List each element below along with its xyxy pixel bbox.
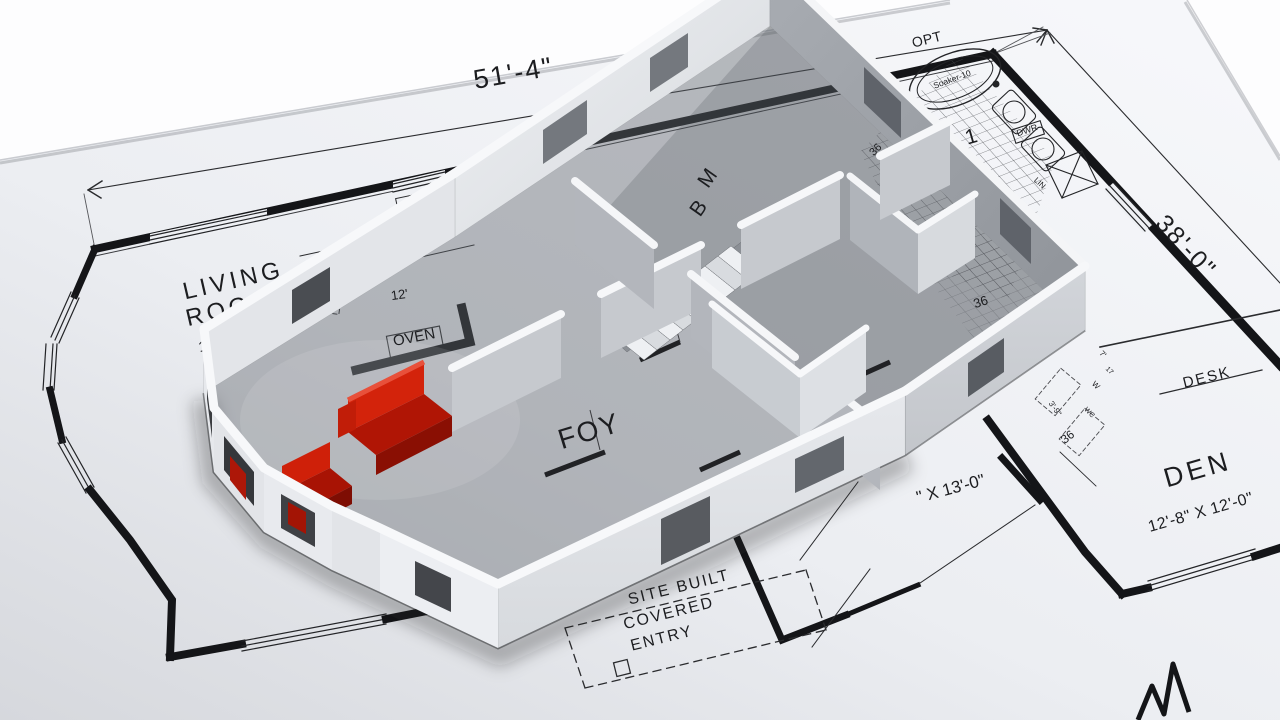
blueprint-scene: 51'-4" 38'-0" OPT Soaker-10 DWR A 1 LIN … [0, 0, 1280, 720]
floorplan-render: 51'-4" 38'-0" OPT Soaker-10 DWR A 1 LIN … [0, 0, 1280, 720]
label-12ft: 12' [390, 286, 409, 303]
faucet-icon [993, 81, 999, 87]
